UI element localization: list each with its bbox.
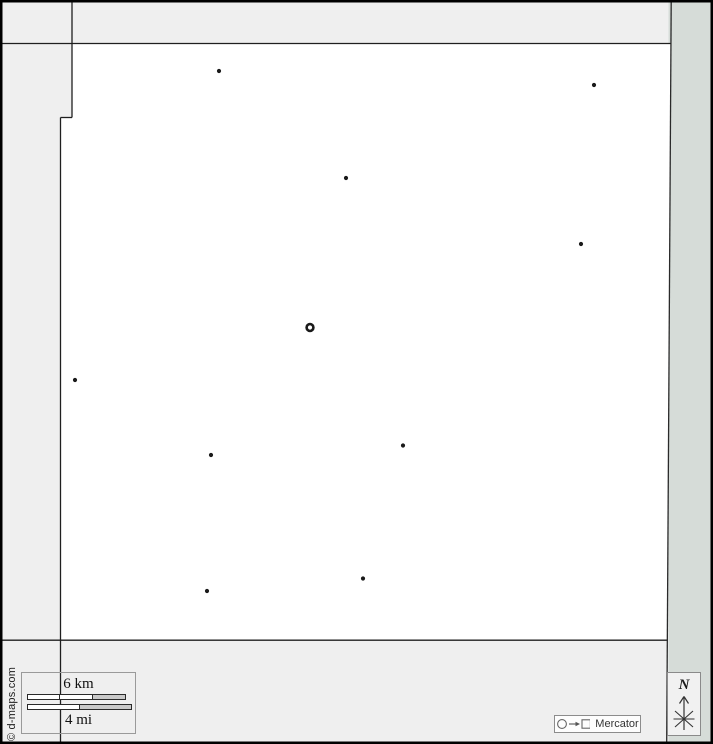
right-margin-strip	[669, 0, 713, 744]
town-marker	[209, 453, 213, 457]
scale-bar-segment	[92, 695, 125, 699]
town-marker	[205, 589, 209, 593]
scale-bar-segment	[28, 705, 79, 709]
map-canvas: © d-maps.com 6 km 4 mi Mercator N	[0, 0, 713, 744]
town-marker	[73, 378, 77, 382]
scale-mi-label: 4 mi	[22, 712, 135, 728]
north-label: N	[679, 676, 690, 694]
globe-circle-icon	[558, 720, 567, 729]
map-geometry	[0, 0, 713, 744]
projection-label: Mercator	[593, 718, 638, 730]
scale-km-label: 6 km	[22, 676, 135, 692]
arrow-head	[576, 722, 581, 727]
town-marker	[401, 443, 405, 447]
compass-box: N	[667, 672, 701, 736]
territory-region	[61, 44, 671, 641]
town-marker	[361, 576, 365, 580]
town-marker	[344, 176, 348, 180]
projected-square-icon	[582, 720, 590, 728]
scale-bar-segment	[79, 705, 132, 709]
projection-transform-icon	[556, 718, 590, 730]
scale-bar-box: 6 km 4 mi	[21, 672, 136, 734]
projection-badge: Mercator	[554, 715, 641, 733]
scale-bar-km	[27, 694, 126, 700]
scale-bar-mi	[27, 704, 132, 710]
scale-bar-segment	[59, 695, 91, 699]
town-marker	[592, 83, 596, 87]
town-marker	[217, 69, 221, 73]
scale-bar-segment	[28, 695, 59, 699]
copyright-text: © d-maps.com	[6, 655, 18, 741]
town-marker	[579, 242, 583, 246]
north-arrow-icon	[668, 694, 700, 734]
